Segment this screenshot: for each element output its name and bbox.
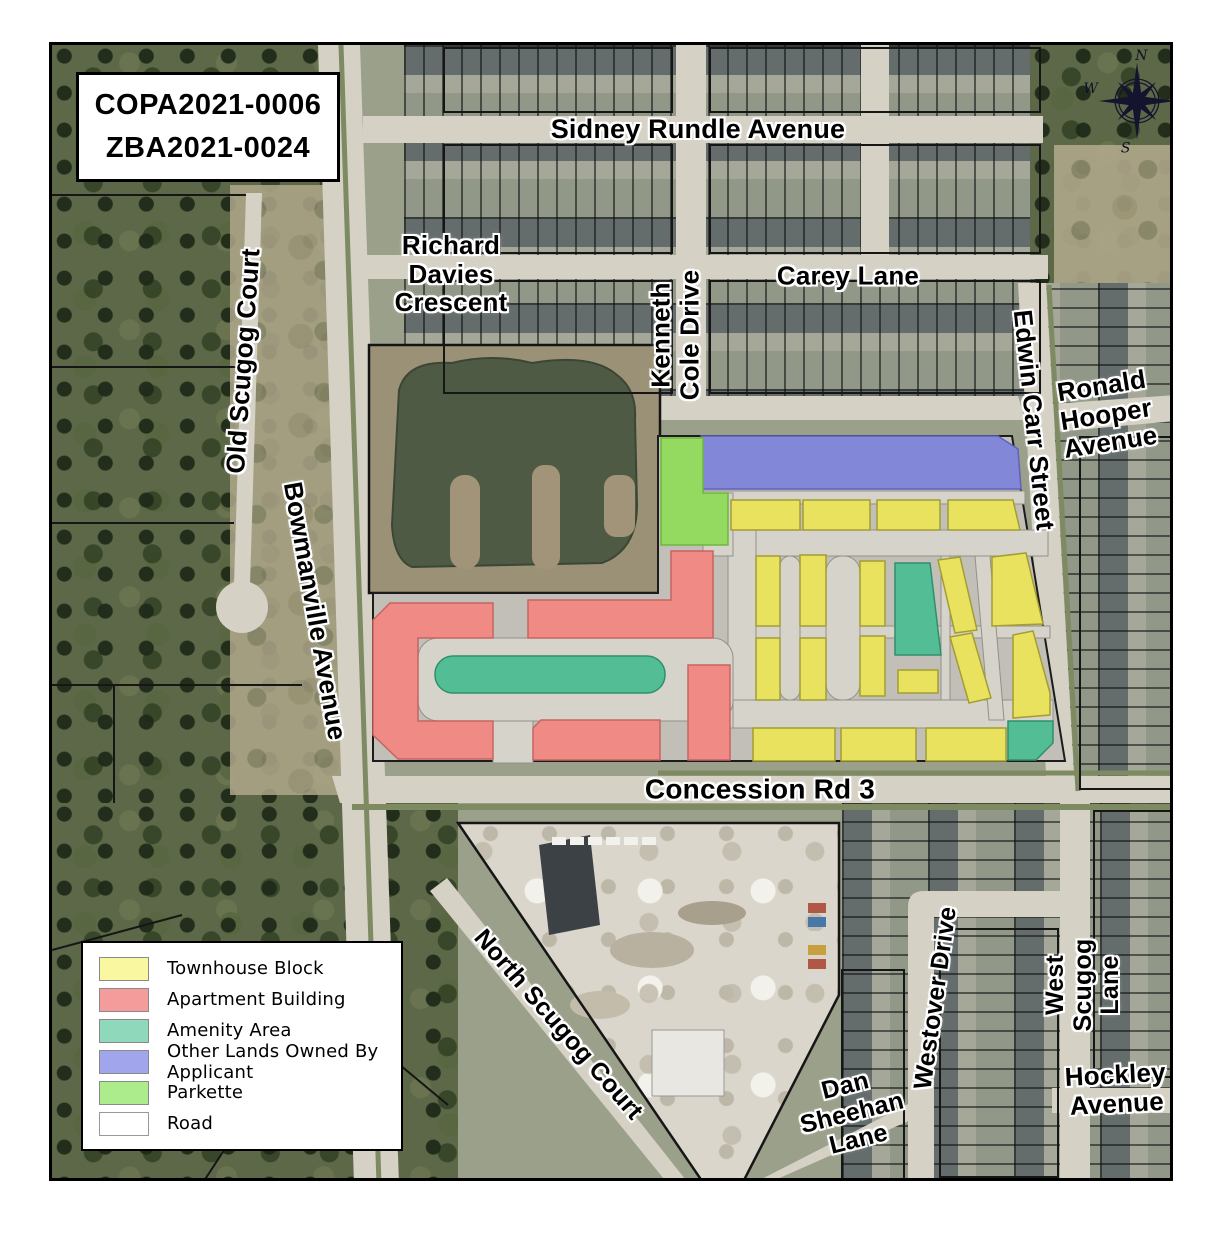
pond-water [392,358,637,567]
townhouse-zone [926,728,1006,761]
street-label-richard-davies: Richard Davies Crescent [395,231,508,317]
legend-row-other-lands: Other Lands Owned By Applicant [99,1046,401,1077]
townhouse-zone [756,638,780,700]
pond-parcel [369,345,660,593]
yard-building-dark [539,835,600,935]
legend-label: Townhouse Block [167,958,324,979]
street-label-hockley: Hockley Avenue [1064,1058,1168,1120]
townhouse-zone [803,500,870,530]
townhouse-zone [731,500,800,530]
application-number-copa: COPA2021-0006 [95,89,322,122]
apartment-building-zone [533,720,660,760]
legend-label: Parkette [167,1082,243,1103]
townhouse-zone [877,500,940,530]
compass-star: N E S W [1084,48,1173,157]
application-title-box: COPA2021-0006 ZBA2021-0024 [76,72,340,182]
apartment-swatch [99,988,149,1012]
legend-row-townhouse: Townhouse Block [99,953,401,984]
legend-row-road: Road [99,1108,401,1139]
townhouse-zone [753,728,835,761]
legend-label: Other Lands Owned By Applicant [167,1041,401,1083]
yard-pile [678,901,746,925]
legend-box: Townhouse Block Apartment Building Ameni… [81,941,403,1151]
amenity-swatch [99,1019,149,1043]
street-label-ronald-hooper: Ronald Hooper Avenue [1053,364,1159,463]
townhouse-zone [948,500,1020,530]
application-number-zba: ZBA2021-0024 [106,132,310,165]
yard-building-white [652,1030,724,1096]
road-swatch [99,1112,149,1136]
street-label-west-scugog: West Scugog Lane [1042,939,1125,1032]
compass-north-label: N [1134,48,1148,64]
townhouse-zone [800,555,826,626]
amenity-area-zone [435,656,665,693]
street-label-kenneth-cole: Kenneth Cole Drive [646,270,703,401]
townhouse-zone [860,636,885,696]
legend-label: Apartment Building [167,989,346,1010]
compass-rose: N E S W [1082,45,1173,157]
north-connector-road [861,45,889,260]
site-north-road [658,396,1025,420]
townhouse-swatch [99,957,149,981]
townhouse-zone [841,728,916,761]
legend-label: Road [167,1113,213,1134]
apartment-building-zone [688,665,730,760]
yard-pile [610,932,694,968]
pond-peninsula-2 [532,465,560,569]
townhouse-zone [800,638,826,700]
old-scugog-culdesac [216,581,268,633]
yard-containers [808,903,826,983]
townhouse-zone [860,561,885,626]
townhouse-zone [756,556,780,626]
street-label-sidney-rundle: Sidney Rundle Avenue [551,115,846,145]
legend-label: Amenity Area [167,1020,292,1041]
planning-map-page: Sidney Rundle Avenue Richard Davies Cres… [0,0,1213,1235]
street-label-carey-lane: Carey Lane [777,262,919,291]
yard-pile [570,991,630,1019]
pond-peninsula-1 [450,475,480,569]
parkette-swatch [99,1081,149,1105]
compass-south-label: S [1121,141,1131,157]
map-canvas: Sidney Rundle Avenue Richard Davies Cres… [49,42,1173,1181]
other-lands-zone [701,436,1021,489]
pond-peninsula-3 [604,475,635,537]
compass-west-label: W [1084,81,1100,97]
legend-row-apartment: Apartment Building [99,984,401,1015]
other-lands-swatch [99,1050,149,1074]
townhouse-zone [898,670,938,693]
street-label-concession-rd-3: Concession Rd 3 [645,775,875,806]
